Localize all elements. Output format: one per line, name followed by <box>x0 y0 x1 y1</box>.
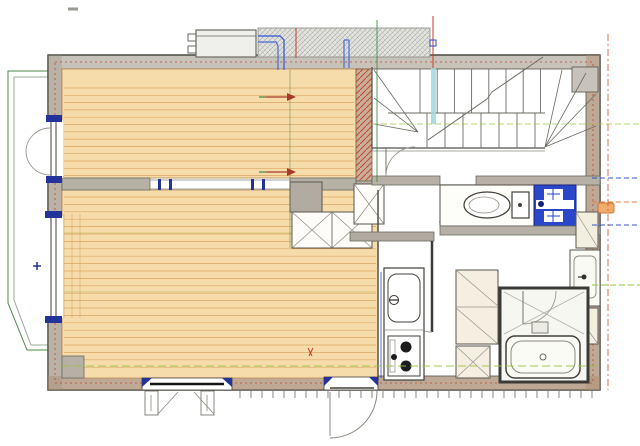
corner-pier <box>62 356 84 378</box>
door-track-mark <box>158 179 161 190</box>
shutter-box <box>145 391 158 415</box>
toilet-valve <box>518 203 522 207</box>
window-jamb-navy <box>46 176 62 183</box>
window-jamb-navy <box>46 115 62 122</box>
room-divider-wall-left <box>62 178 150 190</box>
bath-stool <box>532 322 548 333</box>
door-track-mark <box>169 179 172 190</box>
west-window-swing <box>26 128 50 151</box>
pillar-block <box>290 182 322 212</box>
laundry-drain <box>538 201 544 207</box>
toilet-bowl <box>464 192 510 218</box>
genkan-north-wall <box>350 232 434 241</box>
floor-plan-drawing <box>0 0 640 446</box>
west-window-upper-gap <box>47 120 63 178</box>
foundation-ticks <box>240 391 592 398</box>
ac-outdoor-unit <box>196 30 256 57</box>
ac-unit-tab <box>188 46 196 53</box>
stair-teal-band <box>431 68 436 124</box>
floor-plan <box>0 0 640 446</box>
ac-unit-tab <box>188 34 196 41</box>
pipe-duct-hatched <box>356 69 372 181</box>
window-jamb-navy <box>45 316 62 323</box>
stove-knob <box>391 354 397 360</box>
shutter-open-line <box>158 392 178 414</box>
window-jamb-navy <box>45 211 62 218</box>
entry-door-swing <box>330 391 377 438</box>
west-window-swing <box>26 151 50 175</box>
hall-south-wall-a <box>372 176 440 185</box>
stove-burner <box>401 342 412 353</box>
orange-tag <box>598 203 614 213</box>
door-track-mark <box>251 179 254 190</box>
plan-layer <box>8 9 640 438</box>
room1-floor <box>62 69 356 178</box>
stair-wall-notch <box>572 67 598 92</box>
door-track-mark <box>262 179 265 190</box>
west-window-lower-gap <box>47 216 63 318</box>
hall-south-wall-b <box>476 176 600 185</box>
